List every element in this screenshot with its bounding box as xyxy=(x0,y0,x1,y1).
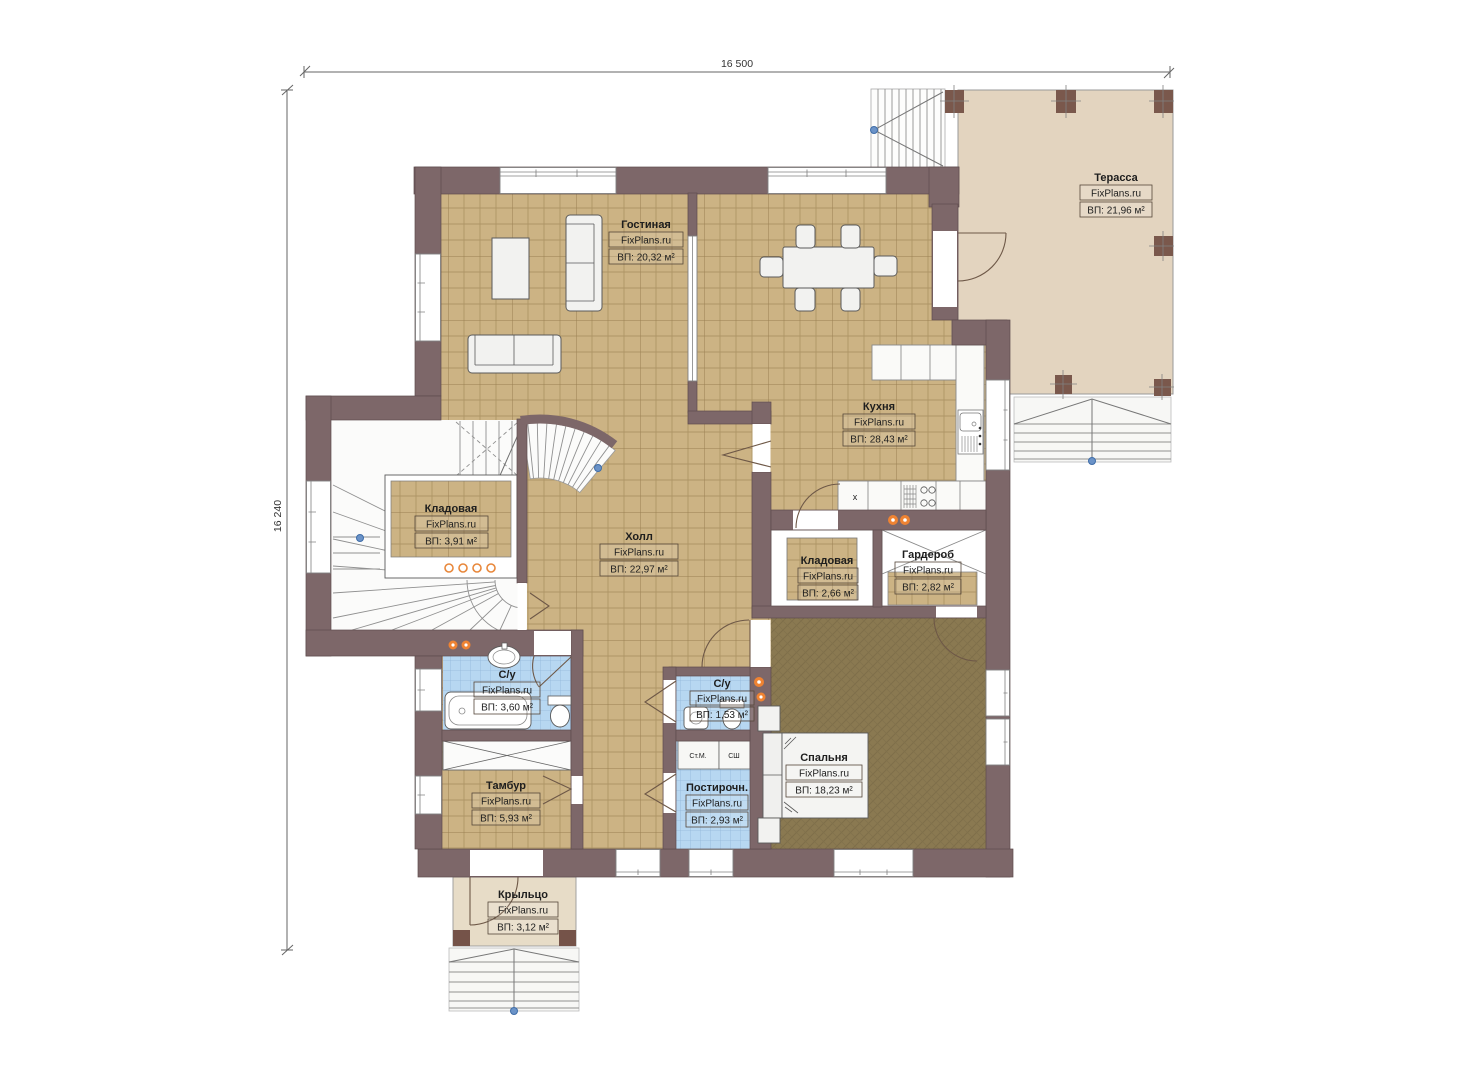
svg-text:Кладовая: Кладовая xyxy=(425,503,478,515)
svg-text:16 500: 16 500 xyxy=(721,58,753,70)
svg-text:FixPlans.ru: FixPlans.ru xyxy=(481,797,531,808)
svg-text:FixPlans.ru: FixPlans.ru xyxy=(1091,189,1141,200)
svg-text:Гардероб: Гардероб xyxy=(902,549,954,561)
svg-text:Постирочн.: Постирочн. xyxy=(686,782,748,794)
svg-text:ВП: 3,91 м²: ВП: 3,91 м² xyxy=(425,537,478,548)
svg-text:FixPlans.ru: FixPlans.ru xyxy=(498,906,548,917)
svg-text:ВП: 5,93 м²: ВП: 5,93 м² xyxy=(480,814,533,825)
svg-text:FixPlans.ru: FixPlans.ru xyxy=(621,236,671,247)
svg-text:ВП: 18,23 м²: ВП: 18,23 м² xyxy=(795,786,853,797)
svg-text:FixPlans.ru: FixPlans.ru xyxy=(426,520,476,531)
svg-text:Кухня: Кухня xyxy=(863,401,895,413)
svg-text:FixPlans.ru: FixPlans.ru xyxy=(854,418,904,429)
svg-text:Тамбур: Тамбур xyxy=(486,780,526,792)
svg-text:ВП: 2,93 м²: ВП: 2,93 м² xyxy=(691,816,744,827)
svg-text:ВП: 20,32 м²: ВП: 20,32 м² xyxy=(617,253,675,264)
svg-text:Холл: Холл xyxy=(625,531,653,543)
svg-text:FixPlans.ru: FixPlans.ru xyxy=(482,686,532,697)
svg-text:ВП: 3,60 м²: ВП: 3,60 м² xyxy=(481,703,534,714)
svg-text:Терасса: Терасса xyxy=(1094,172,1138,184)
svg-text:16 240: 16 240 xyxy=(272,500,284,532)
svg-text:FixPlans.ru: FixPlans.ru xyxy=(903,566,953,577)
svg-text:ВП: 21,96 м²: ВП: 21,96 м² xyxy=(1087,206,1145,217)
svg-text:Кладовая: Кладовая xyxy=(801,555,854,567)
svg-text:Ст.М.: Ст.М. xyxy=(689,753,706,760)
svg-text:ВП: 2,66 м²: ВП: 2,66 м² xyxy=(802,589,855,600)
svg-text:ВП: 1,53 м²: ВП: 1,53 м² xyxy=(696,710,749,721)
svg-text:Крыльцо: Крыльцо xyxy=(498,889,548,901)
svg-text:ВП: 28,43 м²: ВП: 28,43 м² xyxy=(850,435,908,446)
svg-text:Спальня: Спальня xyxy=(800,752,848,764)
svg-text:ВП: 2,82 м²: ВП: 2,82 м² xyxy=(902,583,955,594)
svg-text:х: х xyxy=(853,492,858,502)
svg-text:FixPlans.ru: FixPlans.ru xyxy=(799,769,849,780)
svg-text:FixPlans.ru: FixPlans.ru xyxy=(614,548,664,559)
svg-text:СШ: СШ xyxy=(728,753,739,760)
svg-text:Гостиная: Гостиная xyxy=(621,219,671,231)
svg-text:ВП: 22,97 м²: ВП: 22,97 м² xyxy=(610,565,668,576)
svg-text:FixPlans.ru: FixPlans.ru xyxy=(692,799,742,810)
svg-text:С/у: С/у xyxy=(498,669,516,681)
svg-text:ВП: 3,12 м²: ВП: 3,12 м² xyxy=(497,923,550,934)
svg-text:С/у: С/у xyxy=(713,678,731,690)
svg-text:FixPlans.ru: FixPlans.ru xyxy=(803,572,853,583)
svg-text:FixPlans.ru: FixPlans.ru xyxy=(697,694,747,705)
